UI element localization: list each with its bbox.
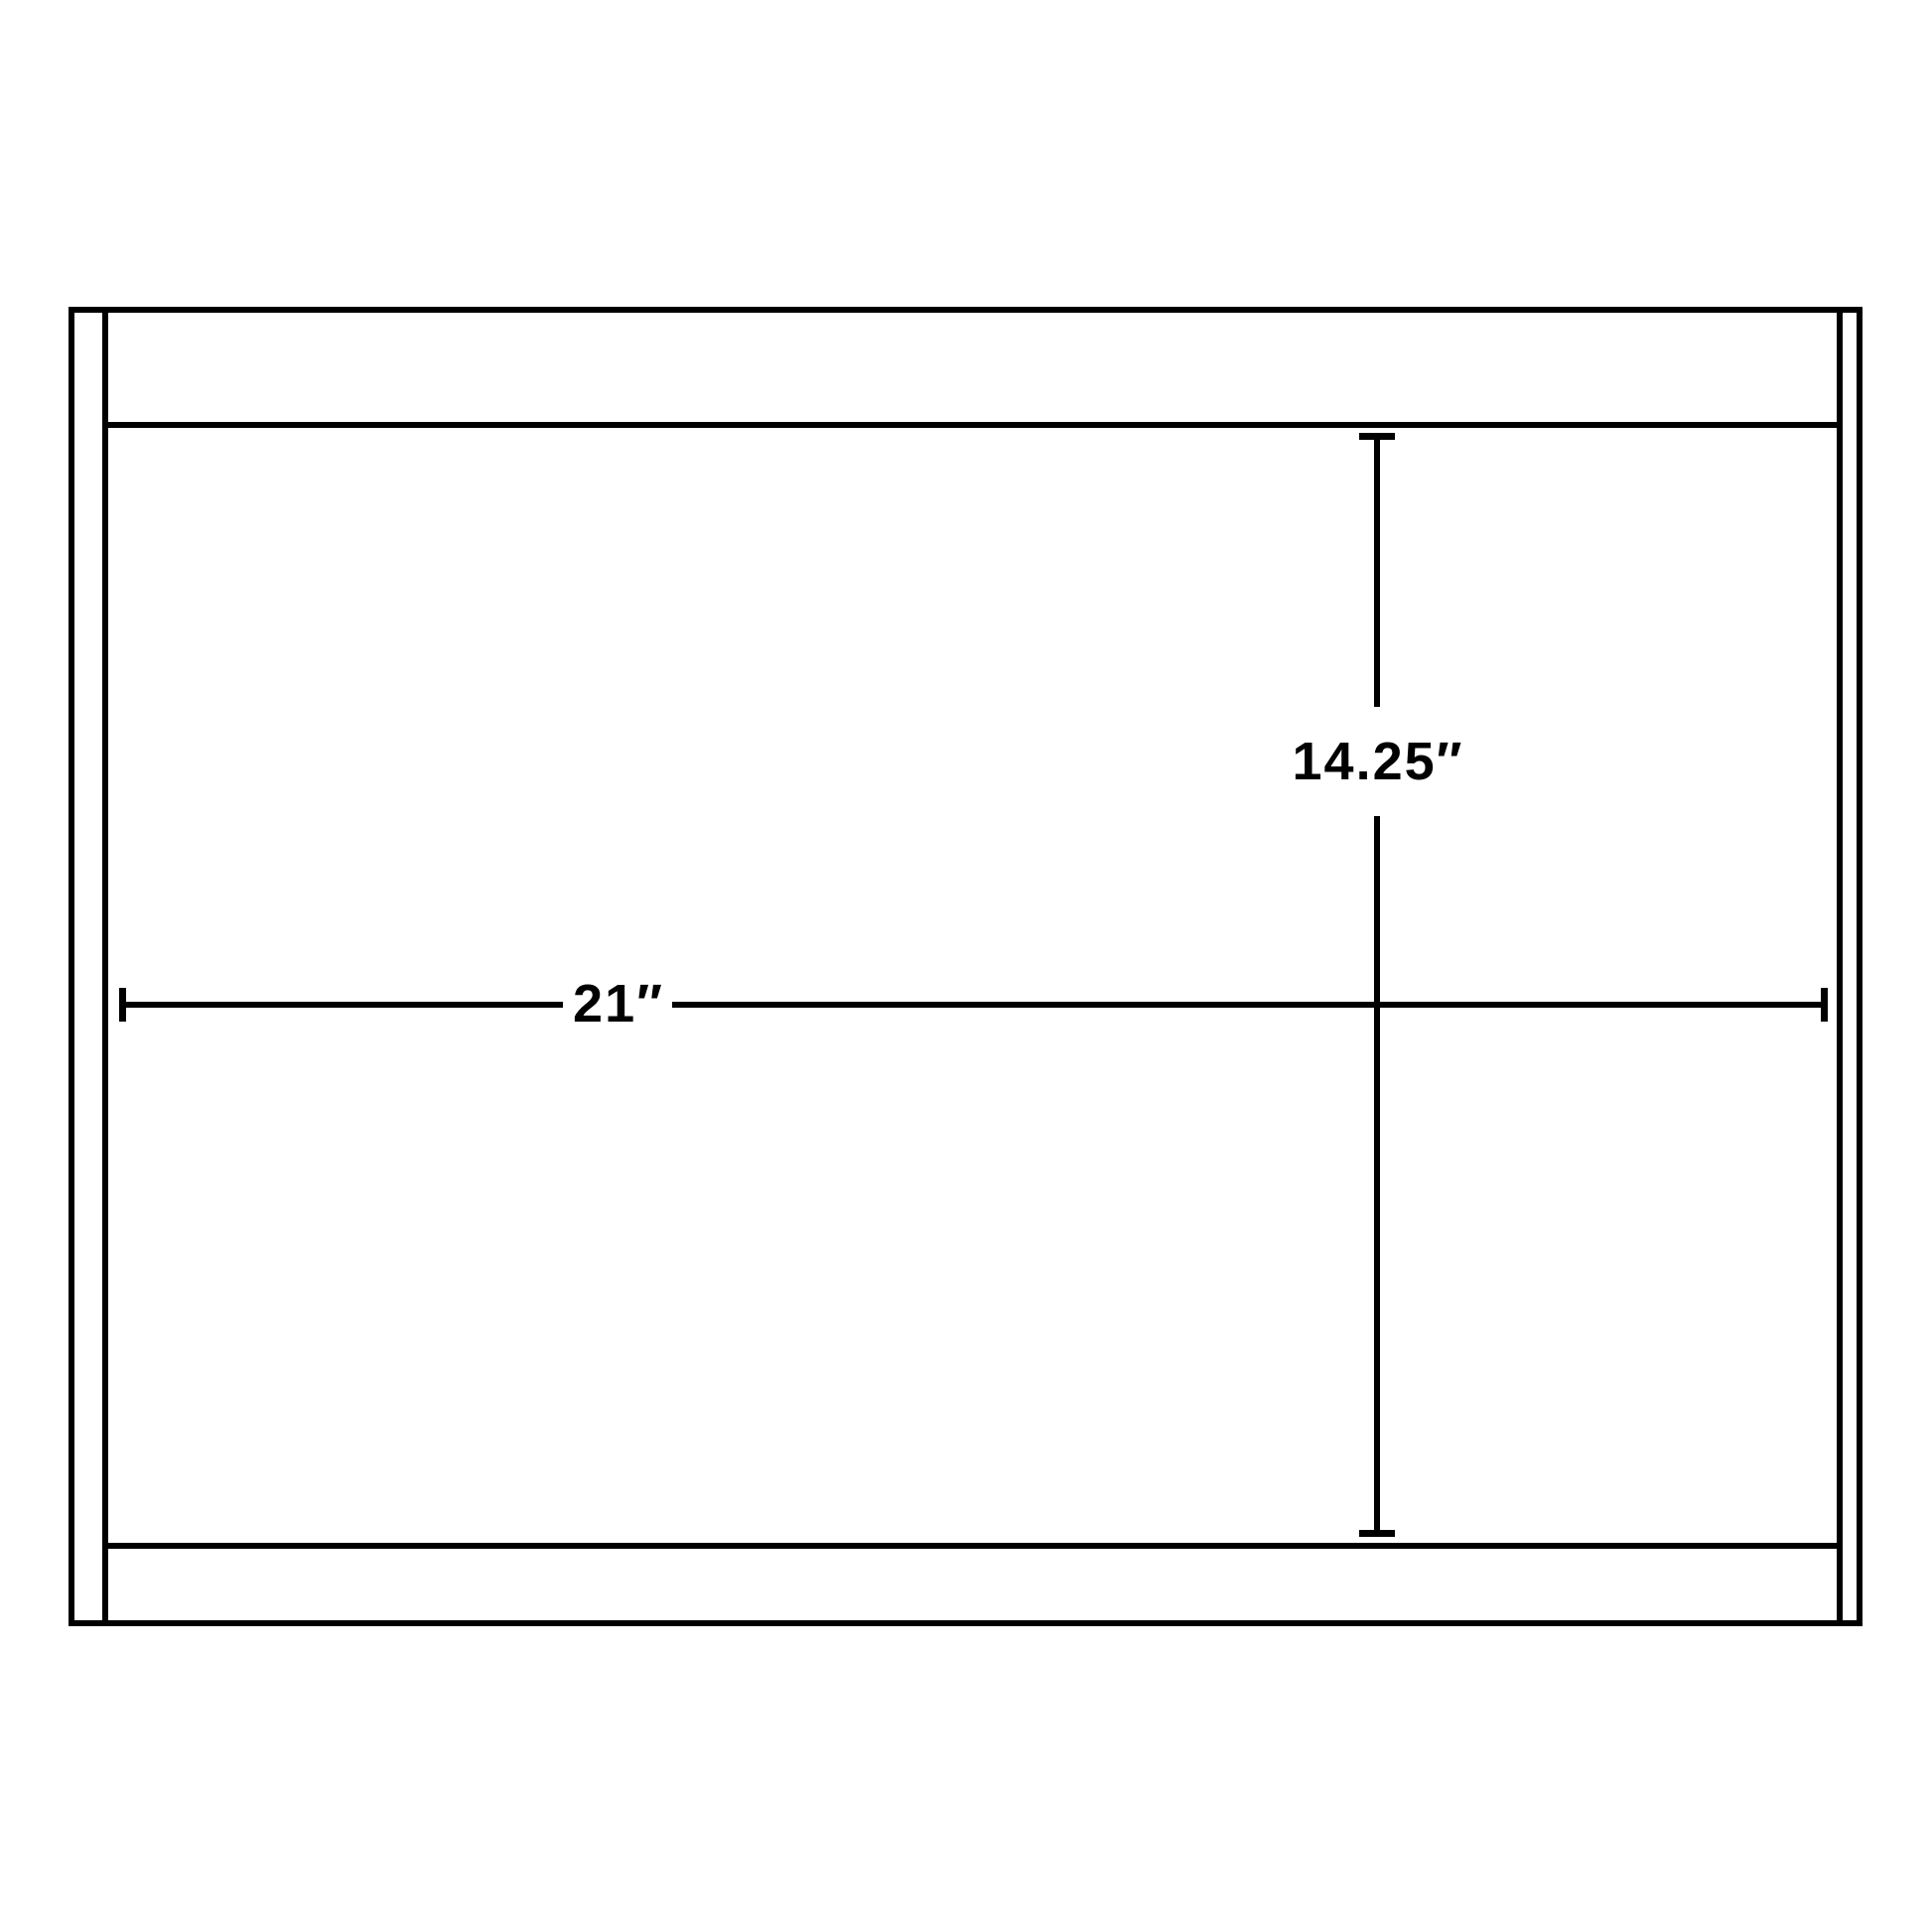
height-dimension-bottom-tick bbox=[1359, 1530, 1395, 1537]
width-dimension-line-left-segment bbox=[122, 1002, 563, 1008]
width-dimension-right-tick bbox=[1821, 988, 1828, 1022]
width-dimension-left-tick bbox=[119, 988, 126, 1022]
top-rail-line bbox=[102, 422, 1843, 428]
height-dimension-line-lower-segment bbox=[1374, 816, 1380, 1534]
dimension-diagram: 21″ 14.25″ bbox=[0, 0, 1932, 1932]
left-side-panel-line bbox=[102, 310, 108, 1623]
height-dimension-line-upper-segment bbox=[1374, 437, 1380, 707]
width-dimension-line-right-segment bbox=[672, 1002, 1825, 1008]
outer-frame-outline bbox=[69, 307, 1863, 1626]
height-dimension-top-tick bbox=[1359, 433, 1395, 440]
height-dimension-label: 14.25″ bbox=[1287, 735, 1470, 788]
width-dimension-label: 21″ bbox=[567, 977, 670, 1031]
bottom-rail-line bbox=[102, 1543, 1843, 1549]
right-side-panel-line bbox=[1837, 310, 1843, 1623]
